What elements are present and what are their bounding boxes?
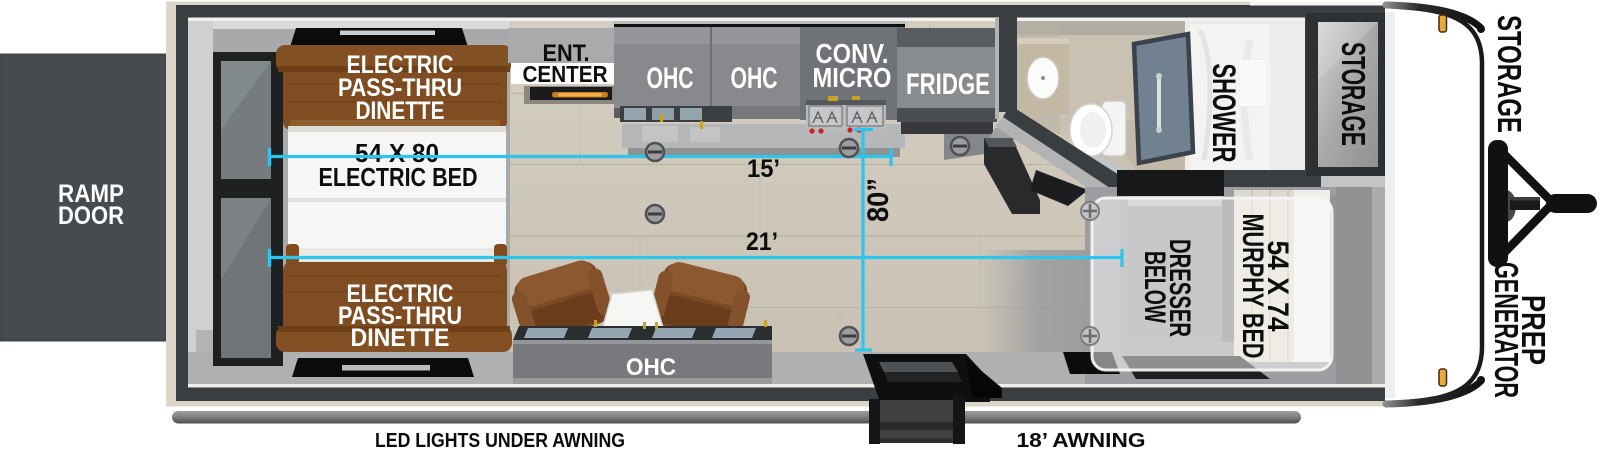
svg-text:15’: 15’ (747, 155, 780, 183)
svg-text:ELECTRIC BED: ELECTRIC BED (319, 162, 478, 192)
svg-text:CENTER: CENTER (523, 61, 608, 87)
svg-text:DOOR: DOOR (58, 202, 124, 230)
svg-text:LED LIGHTS UNDER AWNING: LED LIGHTS UNDER AWNING (375, 430, 625, 450)
svg-text:MURPHY BED: MURPHY BED (1236, 214, 1269, 359)
svg-text:OHC: OHC (731, 62, 778, 95)
svg-text:FRIDGE: FRIDGE (906, 68, 990, 101)
svg-text:PREP: PREP (1515, 295, 1552, 365)
svg-text:MICRO: MICRO (813, 62, 892, 93)
svg-text:DINETTE: DINETTE (356, 97, 445, 125)
svg-text:DINETTE: DINETTE (351, 324, 450, 352)
svg-text:OHC: OHC (647, 62, 694, 95)
svg-text:OHC: OHC (626, 354, 676, 381)
svg-text:18’ AWNING: 18’ AWNING (1017, 430, 1146, 450)
svg-text:STORAGE: STORAGE (1491, 15, 1528, 133)
svg-text:STORAGE: STORAGE (1335, 42, 1372, 146)
svg-text:SHOWER: SHOWER (1206, 64, 1242, 163)
svg-text:21’: 21’ (746, 228, 778, 256)
svg-text:80”: 80” (862, 178, 895, 222)
svg-text:BELOW: BELOW (1138, 251, 1171, 323)
